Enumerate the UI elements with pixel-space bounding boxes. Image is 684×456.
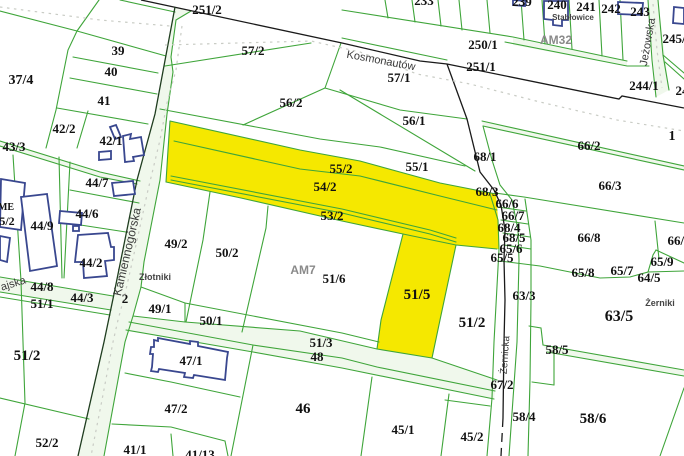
svg-text:42/2: 42/2 xyxy=(52,121,75,136)
svg-text:Żerniki: Żerniki xyxy=(645,298,675,308)
svg-text:242: 242 xyxy=(601,1,621,16)
svg-text:52/2: 52/2 xyxy=(35,435,58,450)
svg-text:51/2: 51/2 xyxy=(459,315,486,331)
svg-text:58/6: 58/6 xyxy=(580,411,607,427)
svg-text:AM32: AM32 xyxy=(540,33,572,47)
svg-text:43/3: 43/3 xyxy=(2,139,26,154)
svg-text:65/9: 65/9 xyxy=(650,254,674,269)
svg-text:243: 243 xyxy=(630,4,650,19)
svg-text:51/1: 51/1 xyxy=(30,296,53,311)
svg-text:37/4: 37/4 xyxy=(9,73,34,88)
svg-text:48: 48 xyxy=(311,349,325,364)
svg-text:47/1: 47/1 xyxy=(179,353,202,368)
svg-text:50/1: 50/1 xyxy=(199,313,222,328)
svg-text:53/2: 53/2 xyxy=(320,208,343,223)
svg-text:46: 46 xyxy=(296,401,312,417)
svg-text:41/13: 41/13 xyxy=(185,447,215,456)
svg-text:57/1: 57/1 xyxy=(387,70,410,85)
svg-text:1: 1 xyxy=(669,129,676,144)
svg-text:66/2: 66/2 xyxy=(577,138,600,153)
svg-text:Stabłowice: Stabłowice xyxy=(552,13,594,22)
svg-text:5/2: 5/2 xyxy=(0,214,15,228)
svg-text:239: 239 xyxy=(512,0,532,9)
svg-text:Złotniki: Złotniki xyxy=(139,272,171,282)
svg-text:63/3: 63/3 xyxy=(512,288,536,303)
svg-text:44/2: 44/2 xyxy=(79,255,102,270)
svg-text:42/1: 42/1 xyxy=(99,133,122,148)
svg-text:AM7: AM7 xyxy=(290,263,316,277)
svg-text:65/7: 65/7 xyxy=(610,263,634,278)
svg-text:ME: ME xyxy=(0,202,14,213)
svg-text:250/1: 250/1 xyxy=(468,37,498,52)
svg-text:39: 39 xyxy=(112,43,126,58)
svg-text:44/8: 44/8 xyxy=(30,279,54,294)
svg-text:45/2: 45/2 xyxy=(460,429,483,444)
svg-text:51/2: 51/2 xyxy=(14,348,41,364)
svg-text:68/1: 68/1 xyxy=(473,149,496,164)
svg-text:240: 240 xyxy=(547,0,567,12)
svg-text:66/8: 66/8 xyxy=(577,230,601,245)
svg-text:45/1: 45/1 xyxy=(391,422,414,437)
svg-text:251/1: 251/1 xyxy=(466,59,496,74)
svg-text:55/2: 55/2 xyxy=(329,161,352,176)
svg-text:50/2: 50/2 xyxy=(215,245,238,260)
svg-text:41/1: 41/1 xyxy=(123,442,146,456)
svg-text:44/7: 44/7 xyxy=(85,175,109,190)
svg-text:44/3: 44/3 xyxy=(70,290,94,305)
svg-text:58/5: 58/5 xyxy=(545,342,569,357)
svg-text:49/1: 49/1 xyxy=(148,301,171,316)
svg-text:49/2: 49/2 xyxy=(164,236,187,251)
svg-text:67/2: 67/2 xyxy=(490,377,513,392)
svg-text:56/2: 56/2 xyxy=(279,95,302,110)
svg-text:51/6: 51/6 xyxy=(322,271,346,286)
svg-text:24: 24 xyxy=(676,83,684,98)
svg-text:47/2: 47/2 xyxy=(164,401,187,416)
svg-text:241: 241 xyxy=(576,0,596,14)
svg-text:244/1: 244/1 xyxy=(629,78,659,93)
svg-text:41: 41 xyxy=(98,93,111,108)
svg-text:58/4: 58/4 xyxy=(512,409,536,424)
svg-text:65/5: 65/5 xyxy=(490,250,514,265)
svg-text:65/8: 65/8 xyxy=(571,265,595,280)
svg-text:251/2: 251/2 xyxy=(192,2,222,17)
svg-text:233: 233 xyxy=(414,0,434,8)
svg-text:66/9: 66/9 xyxy=(667,233,684,248)
svg-text:57/2: 57/2 xyxy=(241,43,264,58)
svg-text:51/5: 51/5 xyxy=(404,287,431,303)
svg-text:55/1: 55/1 xyxy=(405,159,428,174)
svg-text:63/5: 63/5 xyxy=(605,308,633,325)
svg-text:51/3: 51/3 xyxy=(309,335,333,350)
svg-text:54/2: 54/2 xyxy=(313,179,336,194)
svg-text:44/9: 44/9 xyxy=(30,218,54,233)
svg-text:245/: 245/ xyxy=(662,31,684,46)
svg-text:44/6: 44/6 xyxy=(75,206,99,221)
svg-text:66/3: 66/3 xyxy=(598,178,622,193)
svg-text:64/5: 64/5 xyxy=(637,270,661,285)
svg-text:40: 40 xyxy=(105,64,118,79)
svg-text:56/1: 56/1 xyxy=(402,113,425,128)
